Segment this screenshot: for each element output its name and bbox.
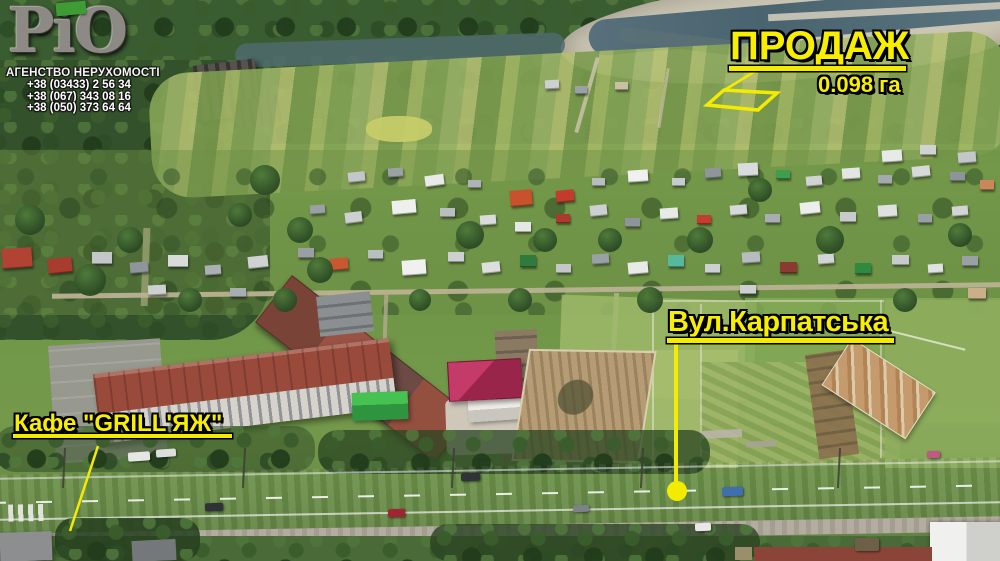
house <box>799 201 820 215</box>
house <box>928 263 944 273</box>
vehicle <box>722 487 743 497</box>
vehicle <box>205 503 223 512</box>
road-lane-dashes <box>0 484 1000 504</box>
bottom-trees-left <box>55 518 200 561</box>
house <box>730 204 748 215</box>
agency-phone-1: +38 (03433) 2 56 34 <box>4 80 154 92</box>
house <box>556 214 570 223</box>
flower-patch <box>366 116 432 142</box>
house <box>628 169 649 182</box>
house <box>230 288 246 297</box>
house <box>806 175 823 186</box>
house <box>776 170 790 179</box>
house <box>247 255 268 269</box>
house <box>705 264 720 273</box>
house <box>368 250 383 259</box>
crosswalk <box>8 504 44 522</box>
tree <box>748 178 772 202</box>
garages-row <box>316 291 374 336</box>
sale-label: ПРОДАЖ <box>730 26 909 66</box>
house <box>402 259 427 276</box>
agency-phone-list: +38 (03433) 2 56 34 +38 (067) 343 08 16 … <box>4 80 154 115</box>
tree <box>409 289 431 311</box>
house <box>740 285 756 294</box>
tree <box>533 228 557 252</box>
logo-green-mark <box>55 1 86 17</box>
house <box>205 264 222 275</box>
house <box>615 82 628 90</box>
tree <box>456 221 484 249</box>
cafe-label: Кафе "GRILL'ЯЖ" <box>14 412 222 436</box>
house <box>878 204 898 217</box>
house <box>840 212 856 222</box>
vehicle <box>461 473 480 482</box>
house <box>842 167 861 179</box>
house <box>980 180 994 190</box>
house <box>765 214 780 223</box>
house <box>780 262 797 273</box>
house <box>697 215 711 224</box>
house <box>958 151 977 164</box>
house <box>589 204 607 217</box>
house <box>952 205 969 216</box>
tree <box>816 226 844 254</box>
cafe-building <box>0 531 52 561</box>
vehicle <box>128 451 151 462</box>
tree <box>508 288 532 312</box>
house <box>705 167 722 178</box>
agency-phone-3: +38 (050) 373 64 64 <box>4 103 154 115</box>
listing-photo-ad: РіО АГЕНСТВО НЕРУХОМОСТІ +38 (03433) 2 5… <box>0 0 1000 561</box>
cafe-underline <box>13 434 232 438</box>
house <box>950 172 965 181</box>
house <box>672 178 685 186</box>
vehicle <box>695 523 711 532</box>
street-underline <box>667 338 894 343</box>
tree <box>307 257 333 283</box>
ruin-debris-2 <box>746 440 776 447</box>
house <box>148 285 166 296</box>
house <box>168 255 188 267</box>
house <box>448 252 464 262</box>
vehicle <box>388 509 405 518</box>
tree <box>598 228 622 252</box>
house <box>660 207 679 219</box>
house <box>555 189 574 203</box>
bottom-shed <box>735 547 752 560</box>
house <box>509 189 532 207</box>
bottom-building-white-gable <box>930 522 1000 561</box>
house <box>515 222 531 232</box>
house <box>480 214 497 225</box>
house <box>882 149 903 162</box>
house <box>556 264 571 273</box>
house <box>911 165 930 178</box>
house <box>855 263 871 274</box>
house <box>918 214 932 223</box>
house <box>818 253 835 264</box>
house <box>625 218 640 227</box>
house <box>545 80 559 90</box>
house <box>440 208 455 217</box>
tree <box>948 223 972 247</box>
tree <box>287 217 313 243</box>
house <box>592 178 605 186</box>
house <box>1 247 32 269</box>
house <box>388 167 404 177</box>
agency-tagline: АГЕНСТВО НЕРУХОМОСТІ <box>6 67 152 79</box>
pink-roof-house <box>447 358 523 402</box>
house <box>298 248 314 258</box>
house <box>310 204 326 214</box>
fence-4 <box>652 300 884 302</box>
green-roof-house <box>352 391 409 421</box>
house <box>344 211 362 224</box>
tree <box>178 288 202 312</box>
vehicle <box>156 448 177 457</box>
tree <box>637 287 663 313</box>
tree <box>74 264 106 296</box>
house <box>348 171 366 183</box>
house <box>520 255 536 267</box>
tree <box>273 288 297 312</box>
vehicle <box>855 538 879 551</box>
house <box>920 145 936 155</box>
house <box>468 180 481 188</box>
vehicle <box>927 451 940 458</box>
house <box>92 252 112 264</box>
tree <box>15 205 45 235</box>
tree <box>117 227 143 253</box>
tree <box>228 203 252 227</box>
house <box>878 175 892 184</box>
bottom-building-gray <box>131 539 176 561</box>
tree <box>893 288 917 312</box>
house <box>391 199 416 215</box>
house <box>962 256 978 266</box>
house <box>575 86 587 94</box>
tree <box>687 227 713 253</box>
sale-underline <box>729 66 906 71</box>
house <box>738 162 759 176</box>
house <box>47 257 72 274</box>
street-label: Вул.Карпатська <box>668 308 888 337</box>
sale-area-label: 0.098 га <box>818 74 901 96</box>
house <box>968 288 986 299</box>
vehicle <box>573 505 589 513</box>
house <box>481 261 500 274</box>
house <box>892 255 909 265</box>
house <box>130 261 149 274</box>
house <box>628 261 649 275</box>
house <box>592 253 610 264</box>
bottom-building-red-roof <box>754 547 932 561</box>
house <box>742 251 761 263</box>
tree <box>250 165 280 195</box>
house <box>668 255 684 267</box>
